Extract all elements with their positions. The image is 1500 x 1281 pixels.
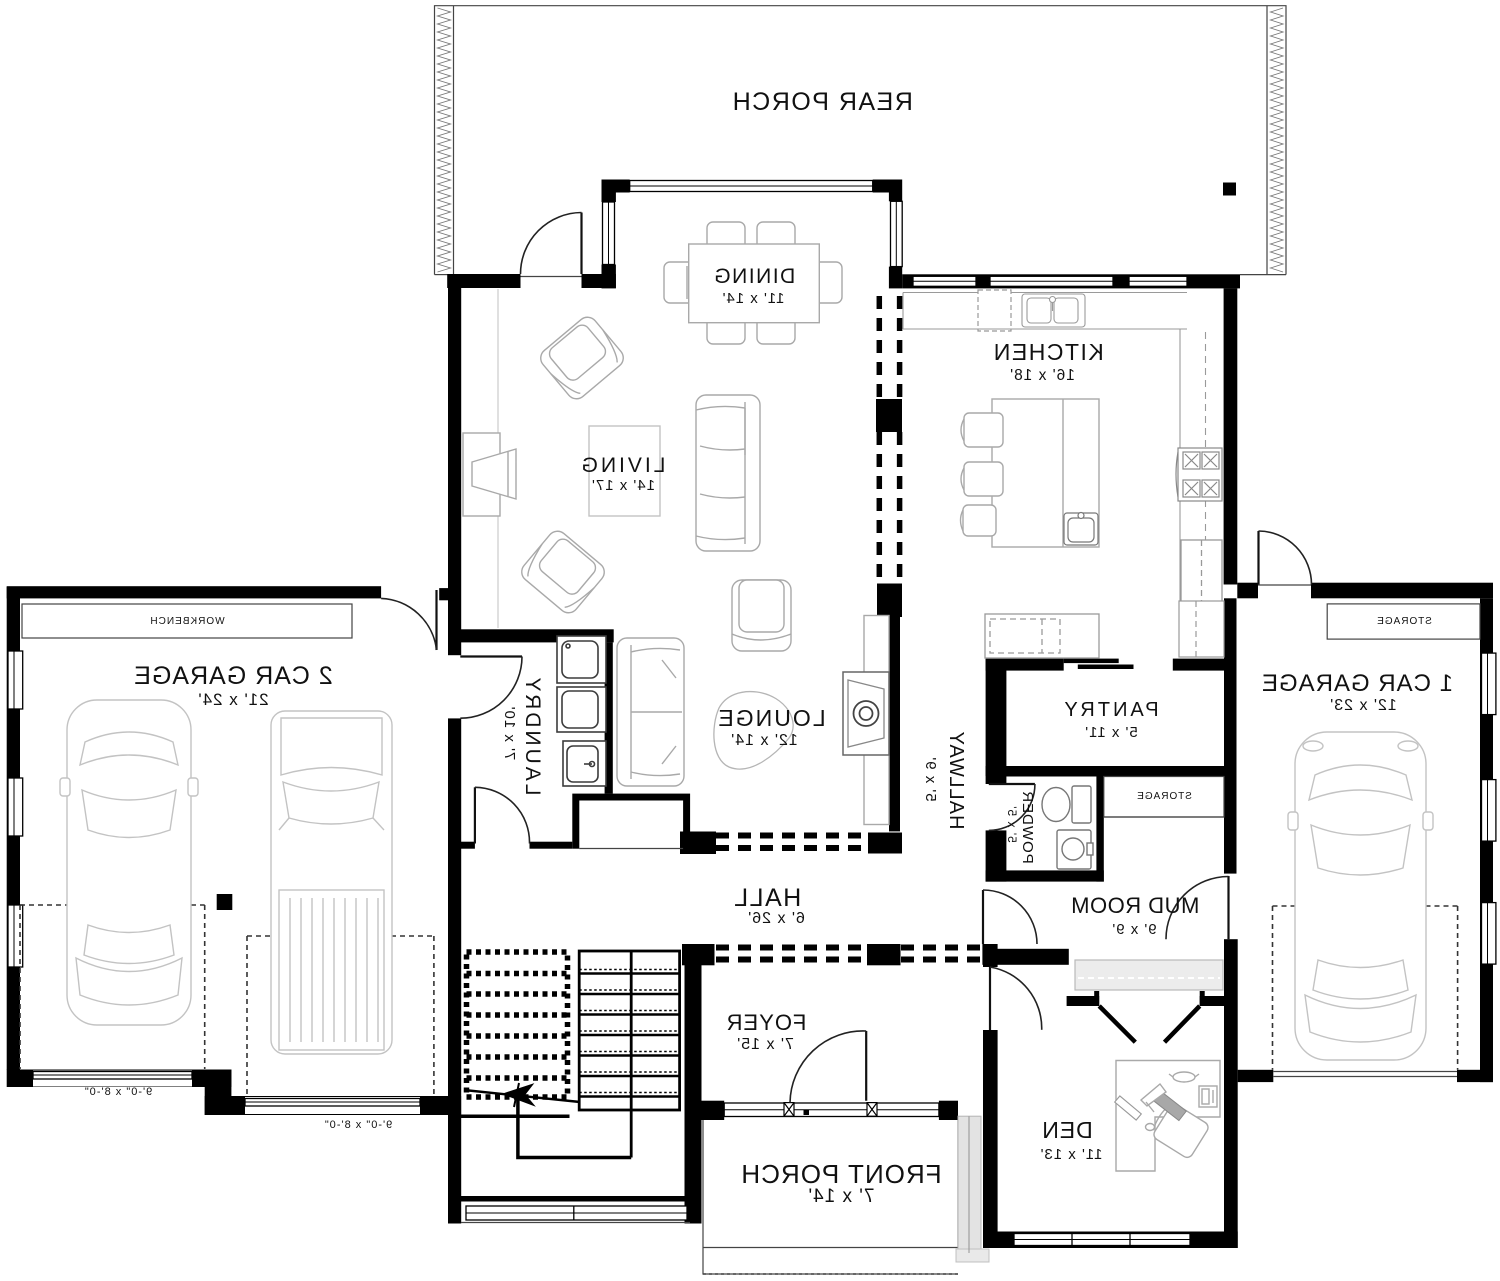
- svg-text:9' x 9': 9' x 9': [1111, 921, 1156, 938]
- svg-text:DINING: DINING: [713, 265, 796, 288]
- svg-text:HALLWAY: HALLWAY: [945, 731, 967, 830]
- svg-text:14' x 17': 14' x 17': [591, 477, 655, 494]
- svg-text:7' x 15': 7' x 15': [736, 1036, 794, 1053]
- svg-text:STORAGE: STORAGE: [1376, 616, 1432, 627]
- svg-text:POWDER: POWDER: [1019, 790, 1036, 864]
- svg-text:DEN: DEN: [1041, 1117, 1093, 1143]
- svg-text:5' x 11': 5' x 11': [1084, 724, 1137, 741]
- svg-text:11' x 13': 11' x 13': [1040, 1146, 1103, 1163]
- svg-text:16' x 18': 16' x 18': [1009, 367, 1075, 384]
- svg-text:11' x 14': 11' x 14': [722, 290, 785, 307]
- svg-text:FOYER: FOYER: [726, 1010, 807, 1035]
- svg-text:KITCHEN: KITCHEN: [992, 339, 1103, 365]
- svg-text:5' x 9': 5' x 9': [922, 756, 939, 801]
- svg-text:REAR PORCH: REAR PORCH: [731, 88, 913, 116]
- svg-text:STORAGE: STORAGE: [1136, 791, 1192, 802]
- svg-text:5' x 5': 5' x 5': [1005, 805, 1019, 843]
- svg-text:LOUNGE: LOUNGE: [716, 705, 825, 731]
- svg-text:1 CAR GARAGE: 1 CAR GARAGE: [1261, 670, 1453, 697]
- svg-text:21' x 24': 21' x 24': [197, 690, 268, 709]
- svg-text:7' x 14': 7' x 14': [807, 1186, 874, 1207]
- svg-text:9'-0" x 8'-0": 9'-0" x 8'-0": [324, 1119, 392, 1131]
- svg-text:7' x 10': 7' x 10': [501, 706, 518, 761]
- svg-text:2 CAR GARAGE: 2 CAR GARAGE: [133, 662, 333, 690]
- svg-text:LIVING: LIVING: [579, 454, 666, 477]
- svg-text:LAUNDRY: LAUNDRY: [521, 675, 544, 796]
- svg-text:PANTRY: PANTRY: [1061, 699, 1158, 721]
- svg-text:MUD ROOM: MUD ROOM: [1071, 893, 1200, 918]
- svg-text:9'-0" x 8'-0": 9'-0" x 8'-0": [84, 1086, 152, 1098]
- svg-text:HALL: HALL: [733, 884, 802, 912]
- svg-text:6' x 26': 6' x 26': [747, 910, 805, 927]
- svg-text:12' x 14': 12' x 14': [730, 732, 798, 749]
- svg-text:WORKBENCH: WORKBENCH: [149, 616, 224, 627]
- svg-text:12' x 23': 12' x 23': [1329, 697, 1397, 714]
- svg-text:FRONT PORCH: FRONT PORCH: [740, 1159, 941, 1189]
